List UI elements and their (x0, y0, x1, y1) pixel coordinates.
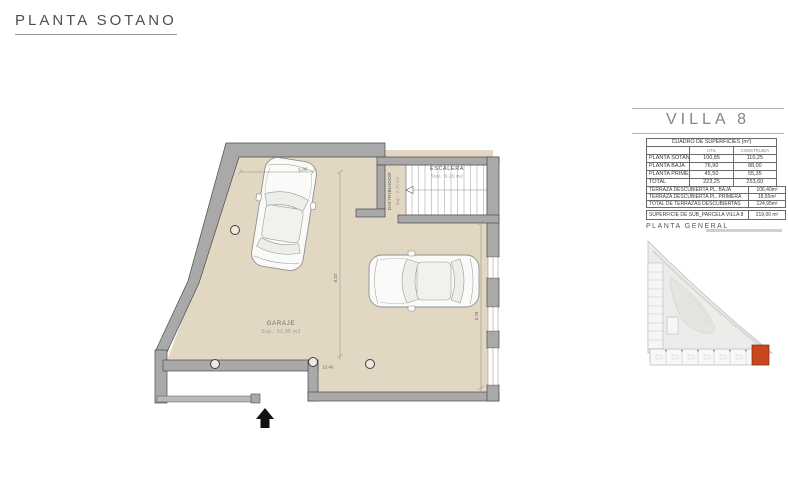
table-row: TOTAL DE TERRAZAS DESCUBIERTAS 124,95m² (647, 201, 786, 208)
panel-top-rule (632, 108, 784, 109)
hall-label: DISTRIBUIDOR (387, 172, 393, 210)
dim-bottom: 13.40 (322, 365, 334, 370)
table-row: PLANTA SOTANO 100,85 110,25 (647, 155, 777, 163)
car-top-view-2 (369, 251, 479, 311)
table-row: SUPERFICIE DE SUB_PARCELA VILLA 8 219,00… (647, 211, 786, 220)
garage-label: GARAJE (267, 321, 296, 327)
plot-outline (648, 241, 772, 353)
stairs-label: ESCALERA (430, 166, 464, 172)
entrance-arrow (256, 408, 274, 428)
stairs-area-label: Sup.: 6,20 m2 (431, 174, 464, 179)
dim-mid-vertical: 8.23 (333, 273, 338, 282)
table-row: TERRAZA DESCUBIERTA PL. BAJA 106,40m² (647, 187, 786, 194)
side-building (667, 317, 678, 334)
table-row: PLANTA BAJA 76,90 88,00 (647, 163, 777, 171)
retaining-wall-cap (251, 394, 260, 403)
dim-right-vertical: 6.78 (474, 311, 479, 320)
retaining-wall (157, 396, 253, 402)
site-plan-rule (706, 229, 782, 232)
highlighted-villa-8 (752, 345, 769, 365)
panel-title-rule (632, 133, 784, 134)
site-plan-map (640, 237, 786, 373)
surfaces-header: CUADRO DE SUPERFICIES (m²) (647, 139, 777, 147)
villa-title: VILLA 8 (632, 111, 784, 129)
surfaces-table: CUADRO DE SUPERFICIES (m²) UTIL CONSTRUI… (646, 138, 777, 187)
drawing-sheet: PLANTA SOTANO (0, 0, 788, 477)
villas-row (650, 349, 768, 365)
col-construida: CONSTRUIDA (733, 147, 776, 155)
parcel-table: SUPERFICIE DE SUB_PARCELA VILLA 8 219,00… (646, 210, 786, 220)
terraces-table: TERRAZA DESCUBIERTA PL. BAJA 106,40m² TE… (646, 186, 786, 208)
garage-area-label: Sup.: 91,95 m2 (261, 329, 301, 335)
col-util: UTIL (690, 147, 733, 155)
window-openings (488, 257, 498, 385)
hall-area-label: Sup.: 2,70 m2 (395, 176, 400, 205)
table-row: TERRAZA DESCUBIERTA PL. PRIMERA 18,55m² (647, 194, 786, 201)
table-row: PLANTA PRIMERA 45,50 55,35 (647, 171, 777, 179)
